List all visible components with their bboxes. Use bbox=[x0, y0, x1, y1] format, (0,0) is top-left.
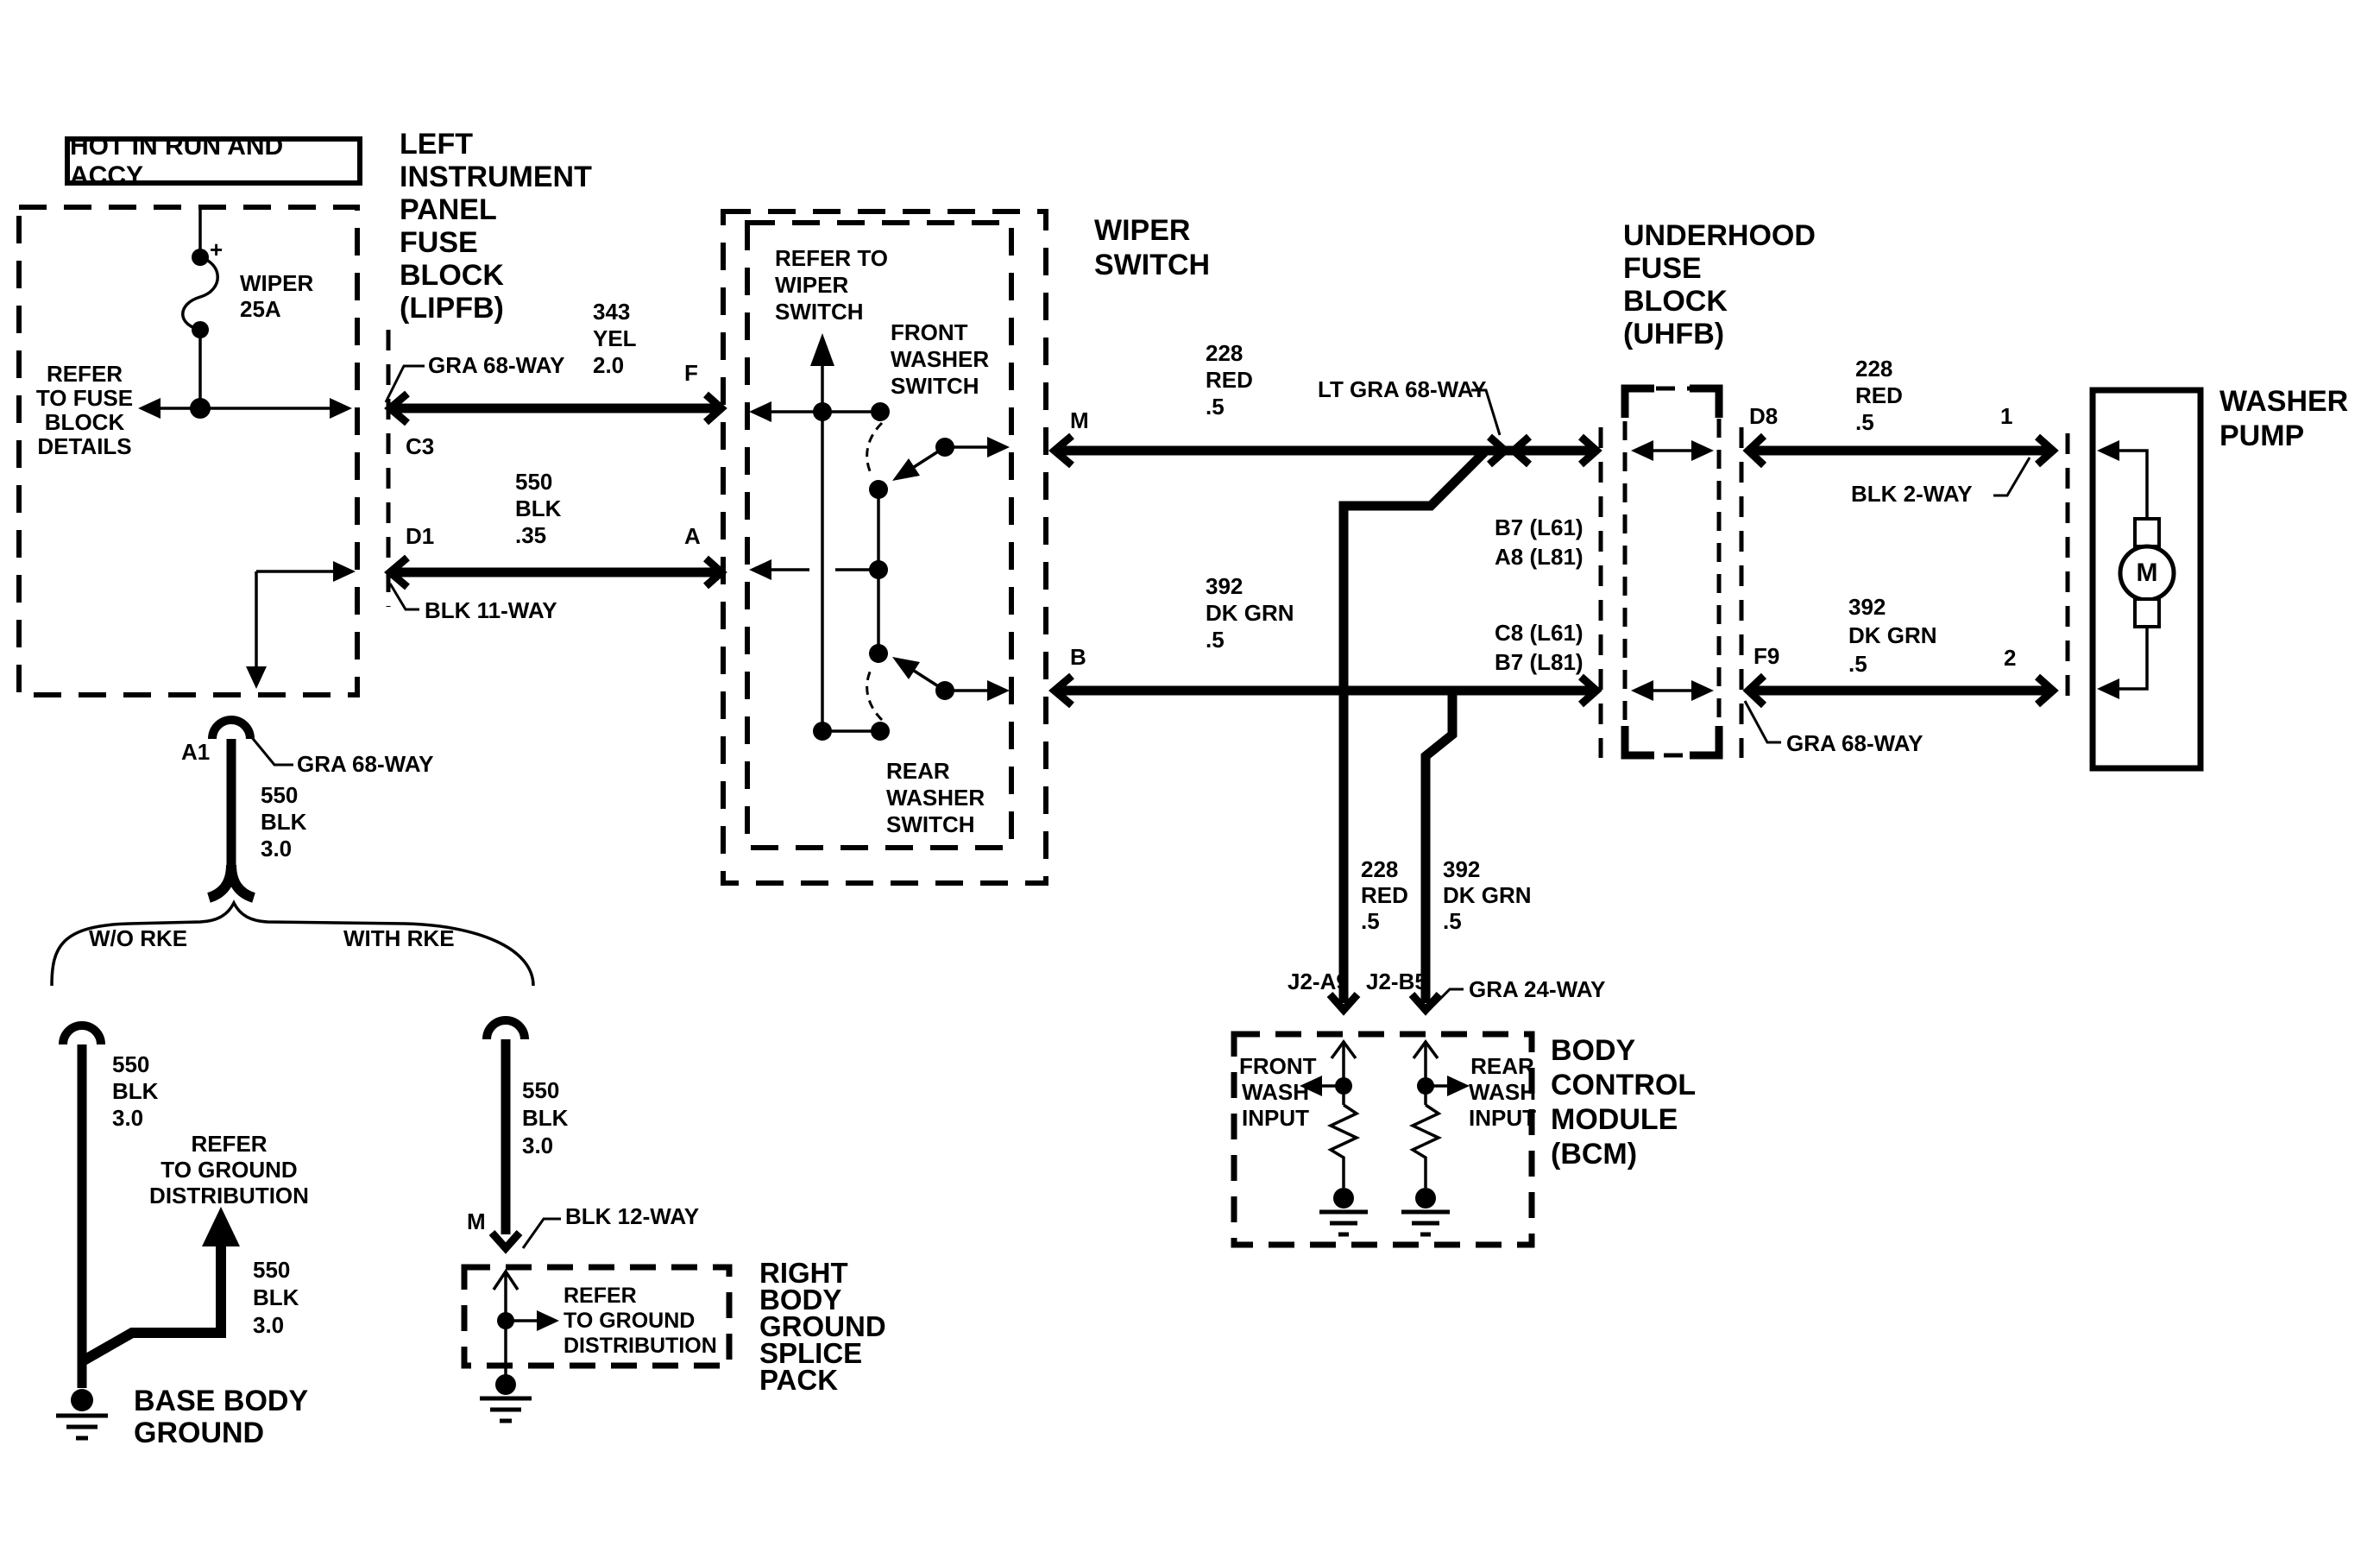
connector-label-ltgra68way: LT GRA 68-WAY bbox=[1318, 378, 1487, 401]
motor-m-label: M bbox=[2131, 559, 2163, 587]
fuse-block-note-line: BLOCK bbox=[20, 411, 149, 434]
wire-label: 392 bbox=[1443, 858, 1480, 881]
wire-228-red-d8 bbox=[1748, 436, 2053, 465]
uhfb-passthrough-arrows bbox=[1631, 440, 1714, 701]
leader-gra68way-f9 bbox=[1745, 701, 1781, 742]
wire-label: 392 bbox=[1206, 575, 1243, 598]
uhfb-box bbox=[1601, 388, 1741, 758]
lipfb-title-line: FUSE bbox=[400, 228, 478, 259]
bcm-title-line: MODULE bbox=[1551, 1105, 1678, 1136]
wire-label: 550 bbox=[253, 1259, 290, 1282]
connector-label-gra68way-f9: GRA 68-WAY bbox=[1786, 732, 1923, 755]
connector-label-gra68way: GRA 68-WAY bbox=[428, 354, 564, 377]
connector-label-blk11way: BLK 11-WAY bbox=[425, 599, 557, 622]
wiper-switch-note-line: WIPER bbox=[775, 274, 848, 297]
wire-label: 3.0 bbox=[522, 1134, 553, 1158]
washer-pump-title-line: PUMP bbox=[2219, 421, 2304, 452]
rear-wash-input-line: REAR bbox=[1465, 1055, 1539, 1078]
wire-392-dkgrn-f9 bbox=[1748, 676, 2053, 705]
splice-note-line: REFER bbox=[564, 1284, 637, 1307]
fuse-name: WIPER bbox=[240, 272, 313, 295]
branch-wo-rke-label: W/O RKE bbox=[89, 927, 187, 950]
wire-label: 550 bbox=[522, 1079, 559, 1102]
bcm-title-line: CONTROL bbox=[1551, 1070, 1696, 1101]
uhfb-pin-label: A8 (L81) bbox=[1495, 546, 1584, 569]
wire-label: YEL bbox=[593, 327, 637, 350]
wire-label: 3.0 bbox=[112, 1107, 143, 1130]
wire-label: 550 bbox=[261, 784, 298, 807]
wire-label: BLK bbox=[515, 497, 561, 521]
lipfb-title-line: LEFT bbox=[400, 129, 473, 161]
base-body-ground-line: GROUND bbox=[134, 1418, 264, 1449]
pin-f: F bbox=[684, 362, 698, 385]
rear-washer-switch-label-line: REAR bbox=[886, 760, 950, 783]
pin-b: B bbox=[1070, 646, 1086, 669]
fuse-block-note-line: DETAILS bbox=[20, 435, 149, 458]
bcm-title-line: BODY bbox=[1551, 1036, 1635, 1067]
wire-label: .5 bbox=[1206, 395, 1225, 419]
leader-blk12way bbox=[523, 1219, 561, 1248]
wire-label: 550 bbox=[515, 470, 552, 494]
wire-label: .5 bbox=[1361, 910, 1380, 933]
uhfb-pin-label: B7 (L61) bbox=[1495, 516, 1584, 540]
front-wash-input-line: INPUT bbox=[1239, 1107, 1312, 1130]
fuse-block-note-line: TO FUSE bbox=[20, 387, 149, 410]
wire-392-branch-bcm bbox=[1412, 693, 1452, 1010]
wire-label: 3.0 bbox=[253, 1314, 284, 1337]
wiper-switch-note-line: REFER TO bbox=[775, 247, 888, 270]
wire-label: .5 bbox=[1855, 411, 1874, 434]
ground-branch-with-rke bbox=[487, 1020, 525, 1248]
wire-label: 343 bbox=[593, 300, 630, 324]
wire-label: BLK bbox=[522, 1107, 568, 1130]
wire-label: 228 bbox=[1361, 858, 1398, 881]
pin-f9: F9 bbox=[1754, 645, 1779, 668]
wire-label: 550 bbox=[112, 1053, 149, 1076]
wire-label: .5 bbox=[1443, 910, 1462, 933]
wire-label: .35 bbox=[515, 524, 546, 547]
pin-m: M bbox=[1070, 409, 1089, 432]
uhfb-title-line: UNDERHOOD bbox=[1623, 221, 1816, 252]
wire-label: RED bbox=[1361, 884, 1408, 907]
pin-a1: A1 bbox=[181, 741, 210, 764]
wire-label: 2.0 bbox=[593, 354, 624, 377]
wiper-switch-title-line: WIPER bbox=[1094, 216, 1190, 247]
fuse-block-note-line: REFER bbox=[20, 363, 149, 386]
wire-label: .5 bbox=[1206, 628, 1225, 652]
leader-gra68way-a1 bbox=[250, 735, 293, 765]
branch-with-rke-label: WITH RKE bbox=[343, 927, 455, 950]
wire-label: 392 bbox=[1848, 596, 1886, 619]
rear-washer-switch-label-line: SWITCH bbox=[886, 813, 975, 836]
wire-label: DK GRN bbox=[1206, 602, 1294, 625]
wire-label: .5 bbox=[1848, 653, 1867, 676]
wire-label: DK GRN bbox=[1443, 884, 1532, 907]
lipfb-title-line: INSTRUMENT bbox=[400, 162, 592, 193]
connector-label-blk12way: BLK 12-WAY bbox=[565, 1205, 699, 1228]
hot-in-run-accy-label: HOT IN RUN AND ACCY bbox=[65, 136, 362, 186]
lipfb-ground-row bbox=[246, 561, 356, 689]
splice-note-line: TO GROUND bbox=[564, 1309, 695, 1332]
wire-550-blk-35 bbox=[390, 558, 721, 587]
pin-m-splice: M bbox=[467, 1210, 486, 1234]
pump-pin-1: 1 bbox=[2000, 405, 2012, 428]
pin-d1: D1 bbox=[406, 525, 434, 548]
connector-label-gra68way-a1: GRA 68-WAY bbox=[297, 753, 433, 776]
wire-343-yel bbox=[390, 394, 721, 423]
wire-550-blk-a1 bbox=[209, 720, 254, 898]
wiper-switch-dashed-boxes bbox=[723, 211, 1046, 883]
leader-blk2way bbox=[1993, 458, 2030, 495]
wire-label: RED bbox=[1855, 384, 1903, 407]
wire-392-dkgrn-b bbox=[1055, 676, 1596, 705]
wire-label: BLK bbox=[261, 811, 306, 834]
fuse-polarity: + bbox=[210, 238, 223, 262]
fuse-output-row bbox=[138, 398, 352, 419]
wiper-switch-title-line: SWITCH bbox=[1094, 250, 1210, 281]
bcm-title-line: (BCM) bbox=[1551, 1139, 1637, 1171]
wire-label: BLK bbox=[253, 1286, 299, 1309]
uhfb-title-line: BLOCK bbox=[1623, 287, 1728, 318]
fuse-rating: 25A bbox=[240, 298, 281, 321]
uhfb-title-line: FUSE bbox=[1623, 254, 1702, 285]
front-wash-input-line: FRONT bbox=[1239, 1055, 1312, 1078]
splice-pack-internals bbox=[480, 1272, 559, 1421]
rear-wash-input-line: INPUT bbox=[1465, 1107, 1539, 1130]
pump-pin-2: 2 bbox=[2004, 647, 2016, 670]
splice-note-line: DISTRIBUTION bbox=[564, 1335, 717, 1357]
front-washer-switch-label-line: WASHER bbox=[891, 348, 989, 371]
uhfb-pin-label: C8 (L61) bbox=[1495, 622, 1584, 645]
uhfb-title-line: (UHFB) bbox=[1623, 319, 1724, 350]
ground-dist-note-line: DISTRIBUTION bbox=[136, 1184, 322, 1208]
rear-washer-switch-label-line: WASHER bbox=[886, 786, 985, 810]
base-body-ground-line: BASE BODY bbox=[134, 1386, 308, 1417]
wire-label: DK GRN bbox=[1848, 624, 1937, 647]
ground-dist-note-line: REFER bbox=[136, 1133, 322, 1156]
front-washer-switch-label-line: SWITCH bbox=[891, 375, 979, 398]
pin-d8: D8 bbox=[1749, 405, 1778, 428]
connector-label-gra24way: GRA 24-WAY bbox=[1469, 978, 1605, 1001]
lipfb-title-line: BLOCK bbox=[400, 261, 504, 292]
lipfb-title-line: PANEL bbox=[400, 195, 497, 226]
splice-pack-name-line: PACK bbox=[759, 1366, 838, 1396]
wire-label: 228 bbox=[1855, 357, 1892, 381]
front-washer-switch-label-line: FRONT bbox=[891, 321, 968, 344]
wiper-switch-note-line: SWITCH bbox=[775, 300, 864, 324]
ground-dist-note-line: TO GROUND bbox=[136, 1158, 322, 1182]
bcm-rear-wash-input bbox=[1401, 1041, 1470, 1234]
uhfb-pin-label: B7 (L81) bbox=[1495, 651, 1584, 674]
wire-label: 3.0 bbox=[261, 837, 292, 861]
wire-228-red-m bbox=[1055, 436, 1596, 465]
wire-label: BLK bbox=[112, 1080, 158, 1103]
pin-j2-b5: J2-B5 bbox=[1366, 970, 1427, 994]
pin-c3: C3 bbox=[406, 435, 434, 458]
front-wash-input-line: WASH bbox=[1239, 1081, 1312, 1104]
rear-wash-input-line: WASH bbox=[1465, 1081, 1539, 1104]
wire-label: RED bbox=[1206, 369, 1253, 392]
lipfb-title-line: (LIPFB) bbox=[400, 293, 504, 325]
washer-pump-title-line: WASHER bbox=[2219, 387, 2348, 418]
wiring-diagram-canvas: HOT IN RUN AND ACCY LEFT INSTRUMENT PANE… bbox=[0, 0, 2380, 1565]
wire-label: 228 bbox=[1206, 342, 1243, 365]
pin-j2-a9: J2-A9 bbox=[1288, 970, 1349, 994]
connector-label-blk2way: BLK 2-WAY bbox=[1851, 483, 1973, 506]
pin-a: A bbox=[684, 525, 701, 548]
